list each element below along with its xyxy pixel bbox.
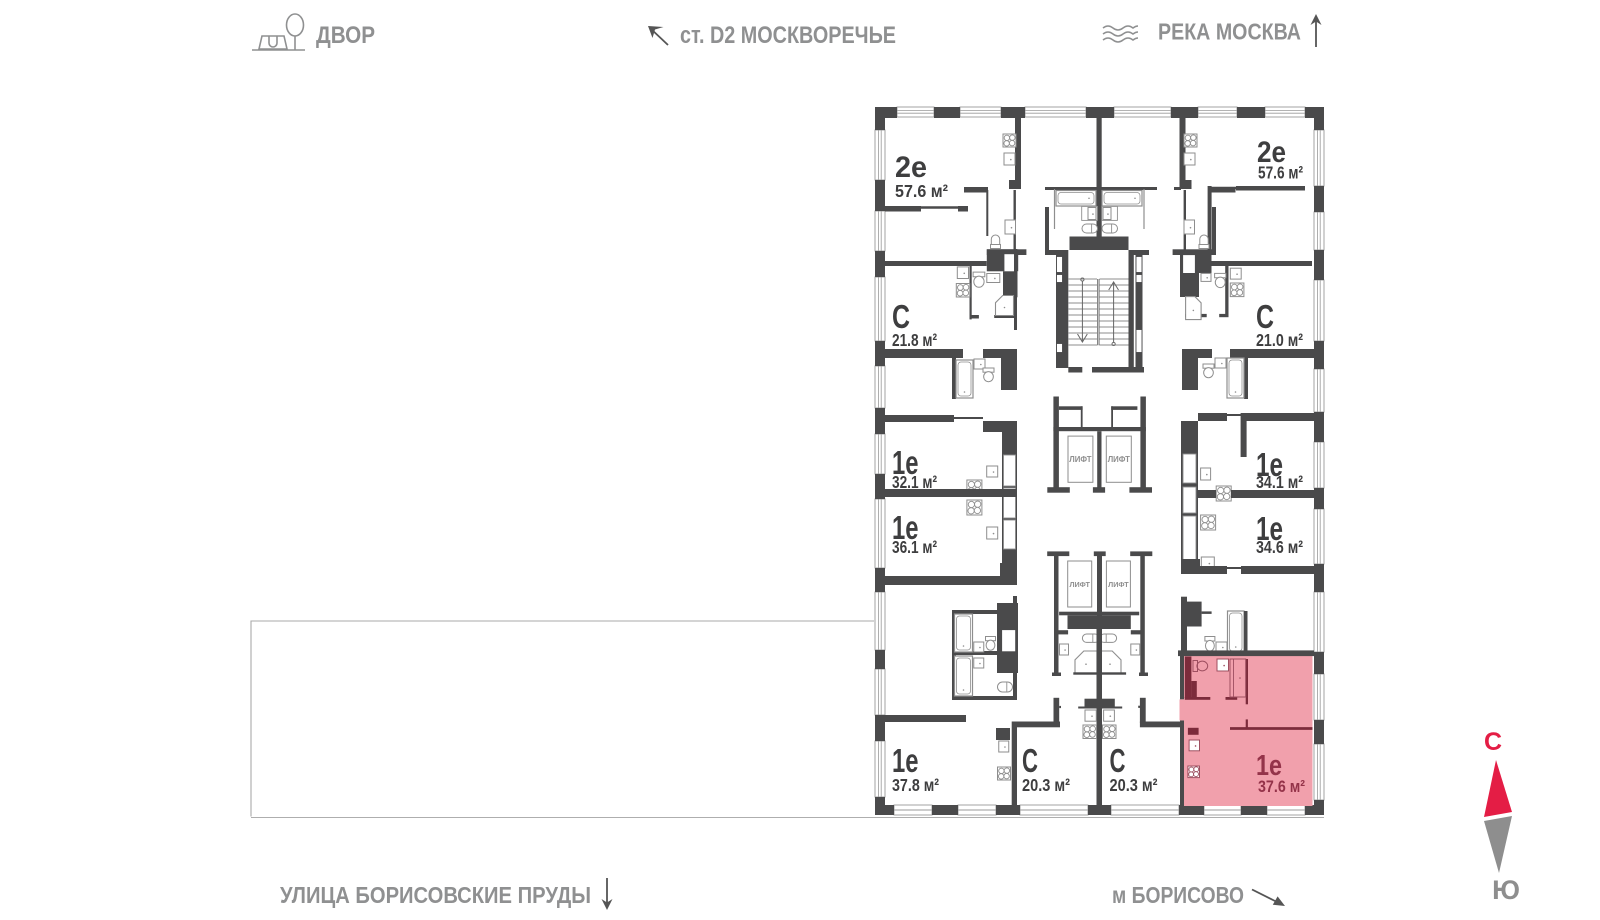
svg-text:37.6 м²: 37.6 м² bbox=[1258, 777, 1305, 796]
svg-text:20.3 м²: 20.3 м² bbox=[1022, 775, 1070, 795]
svg-text:Ю: Ю bbox=[1492, 875, 1520, 905]
svg-text:37.8 м²: 37.8 м² bbox=[892, 775, 939, 795]
svg-text:РЕКА МОСКВА: РЕКА МОСКВА bbox=[1158, 19, 1301, 45]
svg-text:С: С bbox=[1110, 742, 1126, 779]
svg-text:20.3 м²: 20.3 м² bbox=[1110, 775, 1158, 795]
svg-text:ЛИФТ: ЛИФТ bbox=[1069, 455, 1091, 464]
svg-text:57.6 м²: 57.6 м² bbox=[895, 181, 948, 201]
svg-text:С: С bbox=[1484, 728, 1502, 756]
svg-text:57.6 м²: 57.6 м² bbox=[1258, 163, 1303, 183]
svg-text:ЛИФТ: ЛИФТ bbox=[1108, 455, 1130, 464]
svg-text:1е: 1е bbox=[892, 742, 919, 779]
svg-text:21.0 м²: 21.0 м² bbox=[1256, 330, 1303, 350]
svg-text:ст. D2 МОСКВОРЕЧЬЕ: ст. D2 МОСКВОРЕЧЬЕ bbox=[680, 22, 896, 49]
svg-text:2е: 2е bbox=[895, 151, 927, 184]
svg-text:УЛИЦА БОРИСОВСКИЕ ПРУДЫ: УЛИЦА БОРИСОВСКИЕ ПРУДЫ bbox=[280, 882, 591, 908]
svg-text:ЛИФТ: ЛИФТ bbox=[1069, 580, 1090, 589]
svg-text:м БОРИСОВО: м БОРИСОВО bbox=[1112, 882, 1244, 908]
svg-text:34.6 м²: 34.6 м² bbox=[1256, 537, 1303, 557]
svg-text:21.8 м²: 21.8 м² bbox=[892, 330, 937, 350]
svg-text:34.1 м²: 34.1 м² bbox=[1256, 472, 1303, 492]
svg-text:36.1 м²: 36.1 м² bbox=[892, 537, 937, 557]
svg-text:ДВОР: ДВОР bbox=[316, 22, 375, 49]
svg-text:С: С bbox=[1022, 742, 1038, 779]
svg-text:ЛИФТ: ЛИФТ bbox=[1108, 580, 1129, 589]
